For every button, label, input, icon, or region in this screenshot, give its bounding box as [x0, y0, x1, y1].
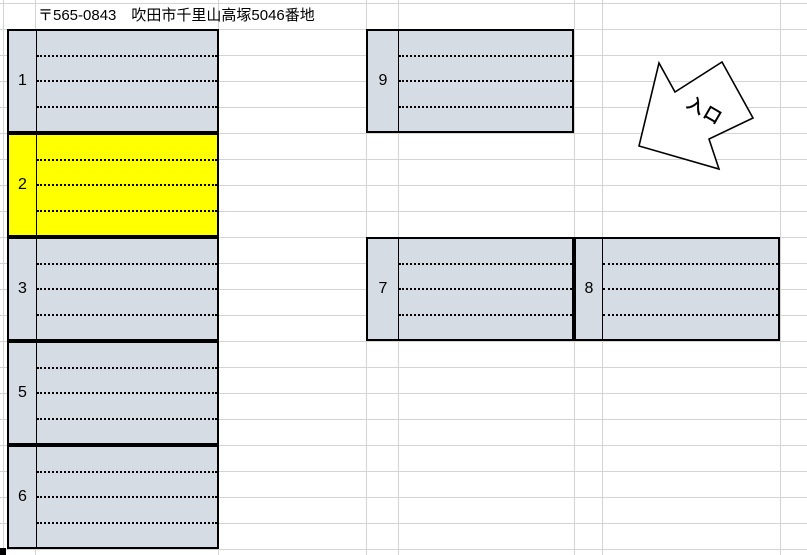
parking-space-9[interactable]: 9 — [366, 29, 574, 133]
space-number-label: 7 — [379, 280, 388, 298]
space-number-cell: 6 — [9, 447, 37, 547]
writing-row — [37, 447, 217, 471]
writing-row — [37, 80, 217, 106]
writing-row — [37, 263, 217, 289]
writing-row — [37, 159, 217, 185]
writing-row — [37, 471, 217, 497]
writing-row — [399, 314, 572, 340]
writing-row — [603, 263, 778, 289]
writing-row — [37, 55, 217, 81]
writing-row — [37, 367, 217, 393]
writing-row — [37, 496, 217, 522]
writing-row — [399, 31, 572, 55]
writing-row — [399, 106, 572, 132]
writing-row — [399, 55, 572, 81]
space-number-cell: 7 — [368, 239, 399, 339]
space-writing-rows — [37, 447, 217, 547]
space-writing-rows — [37, 239, 217, 339]
writing-row — [37, 522, 217, 548]
writing-row — [37, 288, 217, 314]
writing-row — [37, 239, 217, 263]
space-number-label: 6 — [18, 488, 27, 506]
space-number-label: 9 — [379, 72, 388, 90]
writing-row — [37, 135, 217, 159]
parking-space-7[interactable]: 7 — [366, 237, 574, 341]
writing-row — [37, 392, 217, 418]
gridline-horizontal — [0, 549, 807, 550]
parking-space-6[interactable]: 6 — [7, 445, 219, 549]
parking-space-5[interactable]: 5 — [7, 341, 219, 445]
writing-row — [37, 184, 217, 210]
writing-row — [37, 31, 217, 55]
writing-row — [37, 343, 217, 367]
offscreen-box-border — [0, 548, 6, 555]
space-number-cell: 1 — [9, 31, 37, 131]
space-number-label: 1 — [18, 72, 27, 90]
space-writing-rows — [37, 135, 217, 235]
writing-row — [399, 288, 572, 314]
address-cell[interactable]: 〒565-0843 吹田市千里山高塚5046番地 — [38, 3, 315, 29]
space-writing-rows — [399, 31, 572, 131]
writing-row — [37, 210, 217, 236]
space-number-label: 8 — [585, 280, 594, 298]
space-writing-rows — [603, 239, 778, 339]
space-number-cell: 9 — [368, 31, 399, 131]
writing-row — [37, 418, 217, 444]
writing-row — [37, 106, 217, 132]
space-writing-rows — [399, 239, 572, 339]
writing-row — [399, 80, 572, 106]
space-number-cell: 3 — [9, 239, 37, 339]
space-number-label: 2 — [18, 176, 27, 194]
writing-row — [399, 239, 572, 263]
writing-row — [603, 288, 778, 314]
writing-row — [603, 239, 778, 263]
parking-space-2[interactable]: 2 — [7, 133, 219, 237]
writing-row — [603, 314, 778, 340]
writing-row — [399, 263, 572, 289]
writing-row — [37, 314, 217, 340]
space-number-label: 3 — [18, 280, 27, 298]
space-number-cell: 5 — [9, 343, 37, 443]
space-number-cell: 2 — [9, 135, 37, 235]
space-writing-rows — [37, 31, 217, 131]
parking-space-3[interactable]: 3 — [7, 237, 219, 341]
parking-space-1[interactable]: 1 — [7, 29, 219, 133]
spreadsheet-canvas: 〒565-0843 吹田市千里山高塚5046番地 1 2 3 5 6 9 — [0, 0, 807, 555]
space-number-cell: 8 — [576, 239, 603, 339]
parking-space-8[interactable]: 8 — [574, 237, 780, 341]
entrance-arrow[interactable]: 入口 — [628, 50, 768, 180]
space-writing-rows — [37, 343, 217, 443]
space-number-label: 5 — [18, 384, 27, 402]
